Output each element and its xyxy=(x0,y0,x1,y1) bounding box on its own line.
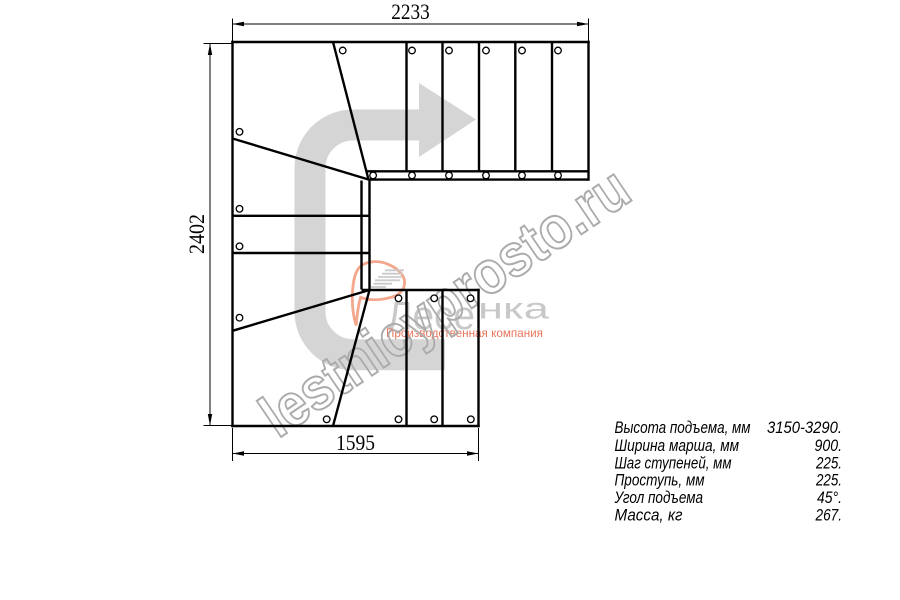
svg-text:3150-3290.: 3150-3290. xyxy=(767,419,842,437)
svg-text:Масса, кг: Масса, кг xyxy=(615,506,683,524)
svg-text:Высота подъема, мм: Высота подъема, мм xyxy=(615,419,751,437)
svg-text:2402: 2402 xyxy=(184,214,209,254)
svg-text:45°.: 45°. xyxy=(817,489,842,507)
svg-text:Ширина марша, мм: Ширина марша, мм xyxy=(615,437,740,455)
svg-text:Проступь, мм: Проступь, мм xyxy=(615,472,705,490)
svg-text:267.: 267. xyxy=(815,506,842,524)
svg-text:Угол подъема: Угол подъема xyxy=(614,489,703,507)
svg-text:1595: 1595 xyxy=(336,430,375,455)
svg-text:225.: 225. xyxy=(815,454,842,472)
svg-text:225.: 225. xyxy=(815,472,842,490)
svg-text:2233: 2233 xyxy=(391,0,430,24)
svg-text:Шаг ступеней, мм: Шаг ступеней, мм xyxy=(615,454,732,472)
svg-text:900.: 900. xyxy=(815,437,843,455)
